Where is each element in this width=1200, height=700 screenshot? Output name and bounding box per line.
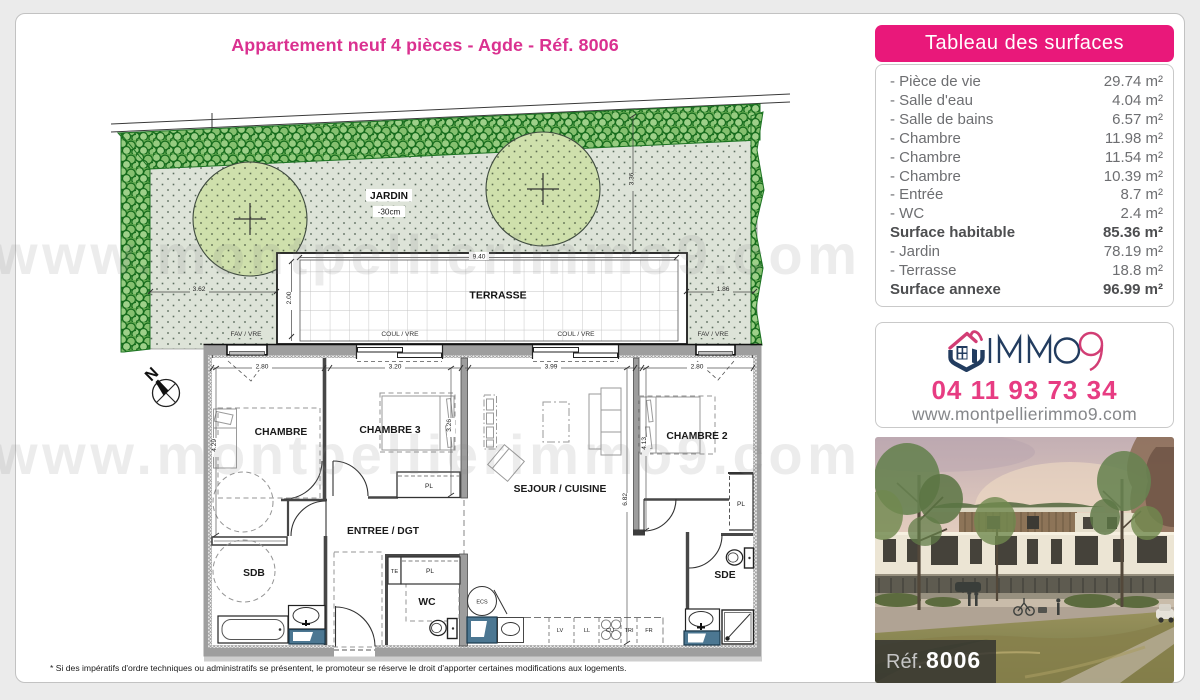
svg-text:9.40: 9.40 [473,254,486,261]
svg-text:ENTREE / DGT: ENTREE / DGT [347,526,420,537]
svg-text:CU: CU [606,628,614,634]
svg-text:8006: 8006 [926,647,981,673]
svg-text:3.62: 3.62 [193,286,206,293]
svg-text:TE: TE [391,569,399,575]
svg-text:SDE: SDE [714,570,735,581]
svg-text:WC: WC [418,597,436,608]
svg-text:-30cm: -30cm [378,208,401,217]
svg-text:CHAMBRE 3: CHAMBRE 3 [359,425,420,436]
svg-text:CHAMBRE 2: CHAMBRE 2 [666,431,727,442]
svg-text:2.80: 2.80 [256,363,269,370]
svg-text:3.26: 3.26 [446,419,453,432]
svg-text:JARDIN: JARDIN [370,191,408,202]
svg-text:4.29: 4.29 [211,439,218,452]
svg-text:LV: LV [557,628,564,634]
svg-text:SDB: SDB [243,568,265,579]
svg-text:ECS: ECS [476,600,488,606]
svg-text:FAV / VRE: FAV / VRE [697,331,729,338]
svg-text:3.36: 3.36 [629,172,636,185]
svg-text:FAV / VRE: FAV / VRE [230,331,262,338]
svg-text:2.80: 2.80 [691,363,704,370]
svg-text:3.20: 3.20 [389,363,402,370]
svg-text:COUL / VRE: COUL / VRE [381,331,419,338]
svg-text:PL: PL [426,568,434,575]
svg-text:PL: PL [425,483,433,490]
svg-text:2.00: 2.00 [286,291,293,304]
svg-text:PL: PL [737,501,745,508]
svg-text:CHAMBRE: CHAMBRE [255,427,308,438]
svg-text:TERRASSE: TERRASSE [469,290,526,302]
svg-text:6.82: 6.82 [622,493,629,506]
svg-text:LL: LL [584,628,590,634]
svg-text:4.13: 4.13 [641,437,648,450]
svg-text:TRI: TRI [624,628,633,634]
svg-text:3.99: 3.99 [545,363,558,370]
svg-text:SEJOUR / CUISINE: SEJOUR / CUISINE [514,484,607,495]
svg-text:COUL / VRE: COUL / VRE [557,331,595,338]
svg-text:Réf.: Réf. [886,651,923,673]
svg-text:1.86: 1.86 [717,286,730,293]
svg-text:FR: FR [645,628,652,634]
